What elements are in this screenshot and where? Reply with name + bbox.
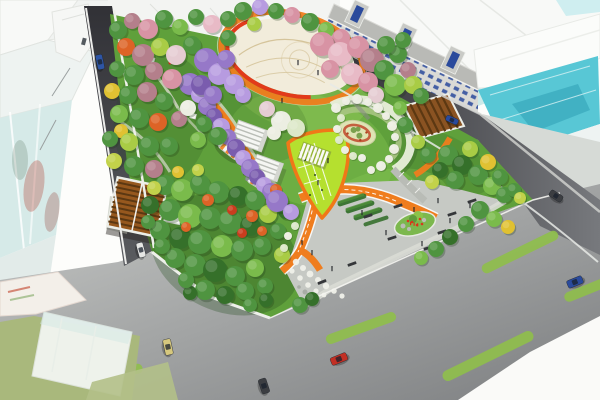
tree-highlight <box>270 4 278 12</box>
tree-highlight <box>440 147 450 157</box>
flower-cluster <box>300 265 306 271</box>
play-equipment <box>321 189 323 191</box>
tree-highlight <box>147 162 156 171</box>
tree-highlight <box>350 153 354 157</box>
tree-highlight <box>237 151 245 159</box>
tree-highlight <box>209 183 220 194</box>
tree-highlight <box>142 216 149 223</box>
tree-highlight <box>213 237 224 248</box>
tree-highlight <box>254 0 262 8</box>
tree-highlight <box>360 74 370 84</box>
tree-highlight <box>444 230 452 238</box>
flower-cluster <box>339 293 344 298</box>
tree-highlight <box>386 156 390 160</box>
tree-highlight <box>272 224 280 232</box>
tree-highlight <box>515 193 521 199</box>
tree-highlight <box>383 113 387 117</box>
rock <box>422 218 426 222</box>
tree-highlight <box>259 279 267 287</box>
tree-highlight <box>148 182 155 189</box>
tree-highlight <box>342 147 346 151</box>
tree-highlight <box>227 268 237 278</box>
red-sculpture <box>414 223 415 226</box>
tree-highlight <box>121 88 130 97</box>
tree-highlight <box>285 205 293 213</box>
tree-highlight <box>334 126 338 130</box>
tree-highlight <box>289 121 298 130</box>
tree-highlight <box>131 110 141 120</box>
tree-highlight <box>192 133 200 141</box>
tree-highlight <box>260 294 267 301</box>
tree-highlight <box>368 167 372 171</box>
tree-highlight <box>402 63 410 71</box>
tree-highlight <box>494 170 502 178</box>
park-aerial-rendering <box>0 0 600 400</box>
tree-highlight <box>261 207 270 216</box>
tree-highlight <box>111 23 120 32</box>
tree-highlight <box>312 34 324 46</box>
tree-highlight <box>218 288 227 297</box>
tree-highlight <box>190 10 198 18</box>
tree-highlight <box>406 78 415 87</box>
rock <box>407 227 411 231</box>
tree-highlight <box>336 137 340 141</box>
tree-highlight <box>473 203 482 212</box>
tree-highlight <box>247 192 257 202</box>
tree-highlight <box>281 245 285 249</box>
tree-highlight <box>332 104 337 109</box>
tree-highlight <box>258 178 266 186</box>
tree-highlight <box>412 136 419 143</box>
tree-highlight <box>222 12 230 20</box>
flower-cluster <box>293 259 299 265</box>
tree-highlight <box>211 129 220 138</box>
tree-highlight <box>174 20 182 28</box>
tree-highlight <box>377 162 382 167</box>
tree-highlight <box>320 23 328 31</box>
tree-highlight <box>415 252 422 259</box>
tree-highlight <box>353 95 358 100</box>
tree-highlight <box>415 89 423 97</box>
tree-highlight <box>171 229 182 240</box>
tree-highlight <box>236 4 245 13</box>
tree-highlight <box>448 173 457 182</box>
tree-highlight <box>112 107 121 116</box>
tree-highlight <box>374 104 379 109</box>
tree-highlight <box>294 298 302 306</box>
tree-highlight <box>399 118 407 126</box>
tree-highlight <box>251 170 259 178</box>
tree-highlight <box>238 229 243 234</box>
tree-highlight <box>228 206 233 211</box>
tree-highlight <box>243 161 252 170</box>
tree-highlight <box>193 77 203 87</box>
play-equipment <box>314 174 316 176</box>
tree-highlight <box>454 157 464 167</box>
tree-highlight <box>193 165 199 171</box>
tree-highlight <box>258 227 263 232</box>
tree-highlight <box>104 132 112 140</box>
tree-highlight <box>111 62 119 70</box>
tree-highlight <box>498 188 506 196</box>
tree-highlight <box>230 188 240 198</box>
tree-highlight <box>119 40 128 49</box>
rock <box>401 224 406 229</box>
tree-highlight <box>376 62 386 72</box>
tree-highlight <box>156 239 164 247</box>
tree-highlight <box>151 115 160 124</box>
tree-highlight <box>186 256 197 267</box>
green-reflection <box>12 140 28 180</box>
tree-highlight <box>106 84 114 92</box>
tree-highlight <box>268 127 275 134</box>
tree-highlight <box>122 135 131 144</box>
tree-highlight <box>182 223 187 228</box>
tree-highlight <box>261 102 269 110</box>
tree-highlight <box>226 76 236 86</box>
tree-highlight <box>482 155 490 163</box>
rock <box>303 290 308 295</box>
tree-highlight <box>164 71 174 81</box>
tree-highlight <box>205 260 217 272</box>
tree-highlight <box>143 198 152 207</box>
tree-highlight <box>180 273 188 281</box>
flower-cluster <box>297 275 303 281</box>
tree-highlight <box>485 179 494 188</box>
red-flower <box>421 223 424 226</box>
tree-highlight <box>140 21 150 31</box>
tree-highlight <box>229 141 238 150</box>
tree-highlight <box>203 195 209 201</box>
tree-highlight <box>365 99 369 103</box>
tree-highlight <box>222 31 230 39</box>
tree-highlight <box>286 8 294 16</box>
tree-highlight <box>268 192 279 203</box>
tree-highlight <box>502 221 509 228</box>
flower-cluster <box>307 271 314 278</box>
flower-cluster <box>305 282 311 288</box>
tree-highlight <box>162 139 171 148</box>
tree-highlight <box>206 88 215 97</box>
tree-highlight <box>362 50 374 62</box>
tree-highlight <box>147 64 156 73</box>
tree-highlight <box>126 14 134 22</box>
tree-highlight <box>323 62 332 71</box>
flower-cluster <box>323 283 329 289</box>
tree-highlight <box>343 98 347 102</box>
tree-highlight <box>197 282 207 292</box>
tree-highlight <box>248 261 257 270</box>
red-flower <box>407 220 410 223</box>
tree-highlight <box>292 223 296 227</box>
tree-highlight <box>238 284 247 293</box>
tree-highlight <box>460 217 468 225</box>
tree-highlight <box>388 122 393 127</box>
tree-highlight <box>379 38 388 47</box>
tree-highlight <box>134 46 145 57</box>
tree-highlight <box>205 17 214 26</box>
tree-highlight <box>201 209 212 220</box>
tree-highlight <box>139 84 149 94</box>
tree-highlight <box>255 239 264 248</box>
tree-highlight <box>182 101 190 109</box>
tree-highlight <box>161 201 172 212</box>
tree-highlight <box>349 38 360 49</box>
tree-highlight <box>180 206 192 218</box>
tree-highlight <box>233 241 244 252</box>
tree-highlight <box>244 299 251 306</box>
tree-highlight <box>247 211 253 217</box>
tree-highlight <box>173 181 184 192</box>
tree-highlight <box>359 155 363 159</box>
scene-canvas <box>0 0 600 400</box>
tree-highlight <box>168 47 178 57</box>
red-sculpture <box>417 223 418 226</box>
tree-highlight <box>210 65 221 76</box>
tree-highlight <box>173 112 181 120</box>
tree-highlight <box>108 154 116 162</box>
tree-highlight <box>157 94 166 103</box>
tree-highlight <box>141 138 151 148</box>
tree-highlight <box>237 88 245 96</box>
tree-highlight <box>196 50 208 62</box>
tree-highlight <box>394 102 401 109</box>
red-sculpture <box>410 222 411 225</box>
tree-highlight <box>208 109 216 117</box>
tree-highlight <box>422 148 430 156</box>
tree-highlight <box>306 293 313 300</box>
tree-highlight <box>426 176 433 183</box>
tree-highlight <box>488 212 496 220</box>
tree-highlight <box>285 233 289 237</box>
tree-highlight <box>126 67 136 77</box>
tree-highlight <box>219 52 228 61</box>
play-equipment <box>309 194 311 196</box>
tree-highlight <box>370 88 378 96</box>
tree-highlight <box>157 12 166 21</box>
tree-highlight <box>330 44 342 56</box>
tree-highlight <box>386 76 397 87</box>
tree-highlight <box>464 142 472 150</box>
tree-highlight <box>153 40 162 49</box>
tree-highlight <box>338 115 342 119</box>
tree-highlight <box>397 33 405 41</box>
tree-highlight <box>470 167 480 177</box>
tree-highlight <box>392 134 396 138</box>
tree-highlight <box>173 167 179 173</box>
tree-highlight <box>334 31 343 40</box>
red-flower <box>419 218 422 221</box>
tree-highlight <box>192 176 202 186</box>
tree-highlight <box>303 15 312 24</box>
tree-highlight <box>126 158 136 168</box>
tree-highlight <box>190 232 202 244</box>
tree-highlight <box>390 145 395 150</box>
tree-highlight <box>430 242 438 250</box>
tree-highlight <box>198 117 206 125</box>
tree-highlight <box>248 18 255 25</box>
rock <box>297 285 301 289</box>
tree-highlight <box>508 184 515 191</box>
tree-highlight <box>343 65 354 76</box>
tree-highlight <box>185 38 194 47</box>
tree-highlight <box>115 125 122 132</box>
tree-highlight <box>434 163 442 171</box>
flower-cluster <box>289 268 294 273</box>
